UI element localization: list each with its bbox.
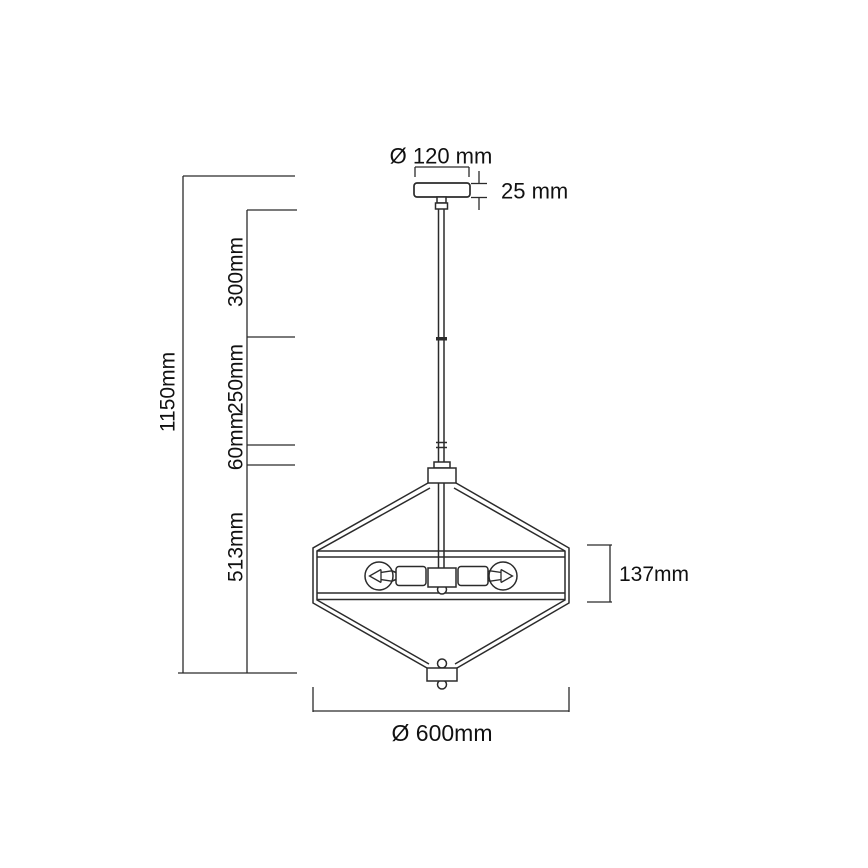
diagram-canvas: 1150mm 300mm 250mm 60mm 513mm Ø 120 mm 2… [0, 0, 868, 868]
right-socket [458, 567, 488, 586]
shade-diameter-dimension: Ø 600mm [313, 687, 569, 746]
segment-250-label: 250mm [225, 344, 248, 414]
lamp-dimension-drawing: 1150mm 300mm 250mm 60mm 513mm Ø 120 mm 2… [0, 0, 868, 868]
band-height-dimension: 137mm [587, 545, 689, 602]
band-height-label: 137mm [619, 563, 689, 586]
canopy-collar-lower [436, 203, 448, 209]
frame-top-collar [434, 462, 450, 468]
total-height-label: 1150mm [157, 352, 180, 432]
canopy-plate [414, 183, 470, 197]
finial-upper-knob [438, 659, 447, 668]
canopy-collar-upper [437, 197, 446, 203]
segment-513-label: 513mm [225, 512, 248, 582]
left-dimension-lines: 1150mm 300mm 250mm 60mm 513mm [157, 176, 298, 673]
canopy-diameter-label: Ø 120 mm [390, 144, 493, 169]
canopy-thickness-label: 25 mm [501, 179, 568, 204]
rod-joint-upper [436, 337, 447, 341]
bottom-finial [427, 659, 457, 689]
center-hub-block [428, 568, 456, 587]
finial-block [427, 668, 457, 681]
suspension-rod [428, 209, 456, 483]
segment-60-label: 60mm [225, 412, 248, 470]
left-socket [396, 567, 426, 586]
segment-300-label: 300mm [225, 237, 248, 307]
frame-top-connector-block [428, 468, 456, 483]
bulb-assembly [365, 562, 517, 594]
shade-diameter-label: Ø 600mm [392, 720, 493, 746]
canopy: Ø 120 mm 25 mm [390, 144, 569, 211]
